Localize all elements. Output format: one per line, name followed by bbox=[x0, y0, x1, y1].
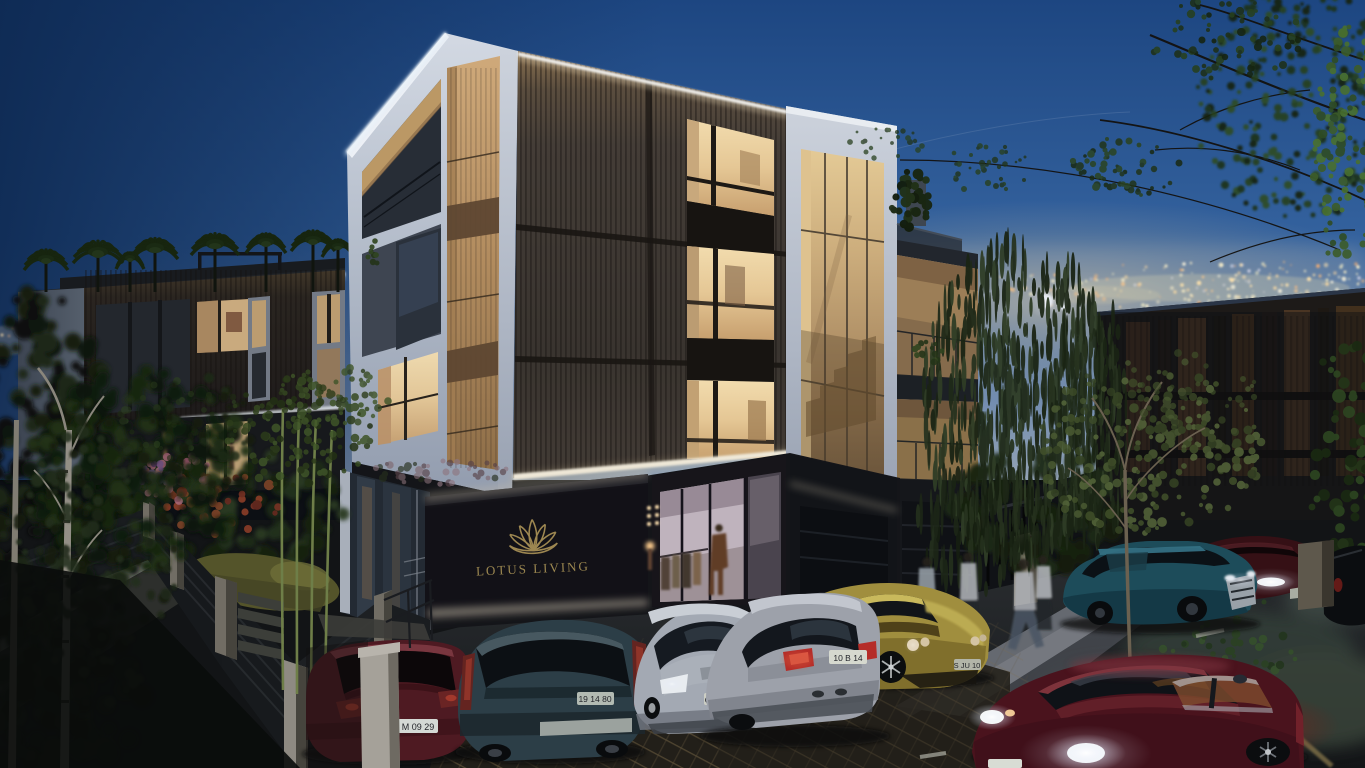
svg-text:19 14 80: 19 14 80 bbox=[578, 694, 611, 704]
svg-text:10 B 14: 10 B 14 bbox=[833, 653, 863, 663]
svg-text:M 09 29: M 09 29 bbox=[402, 722, 435, 732]
svg-text:S JU 10: S JU 10 bbox=[954, 661, 981, 670]
